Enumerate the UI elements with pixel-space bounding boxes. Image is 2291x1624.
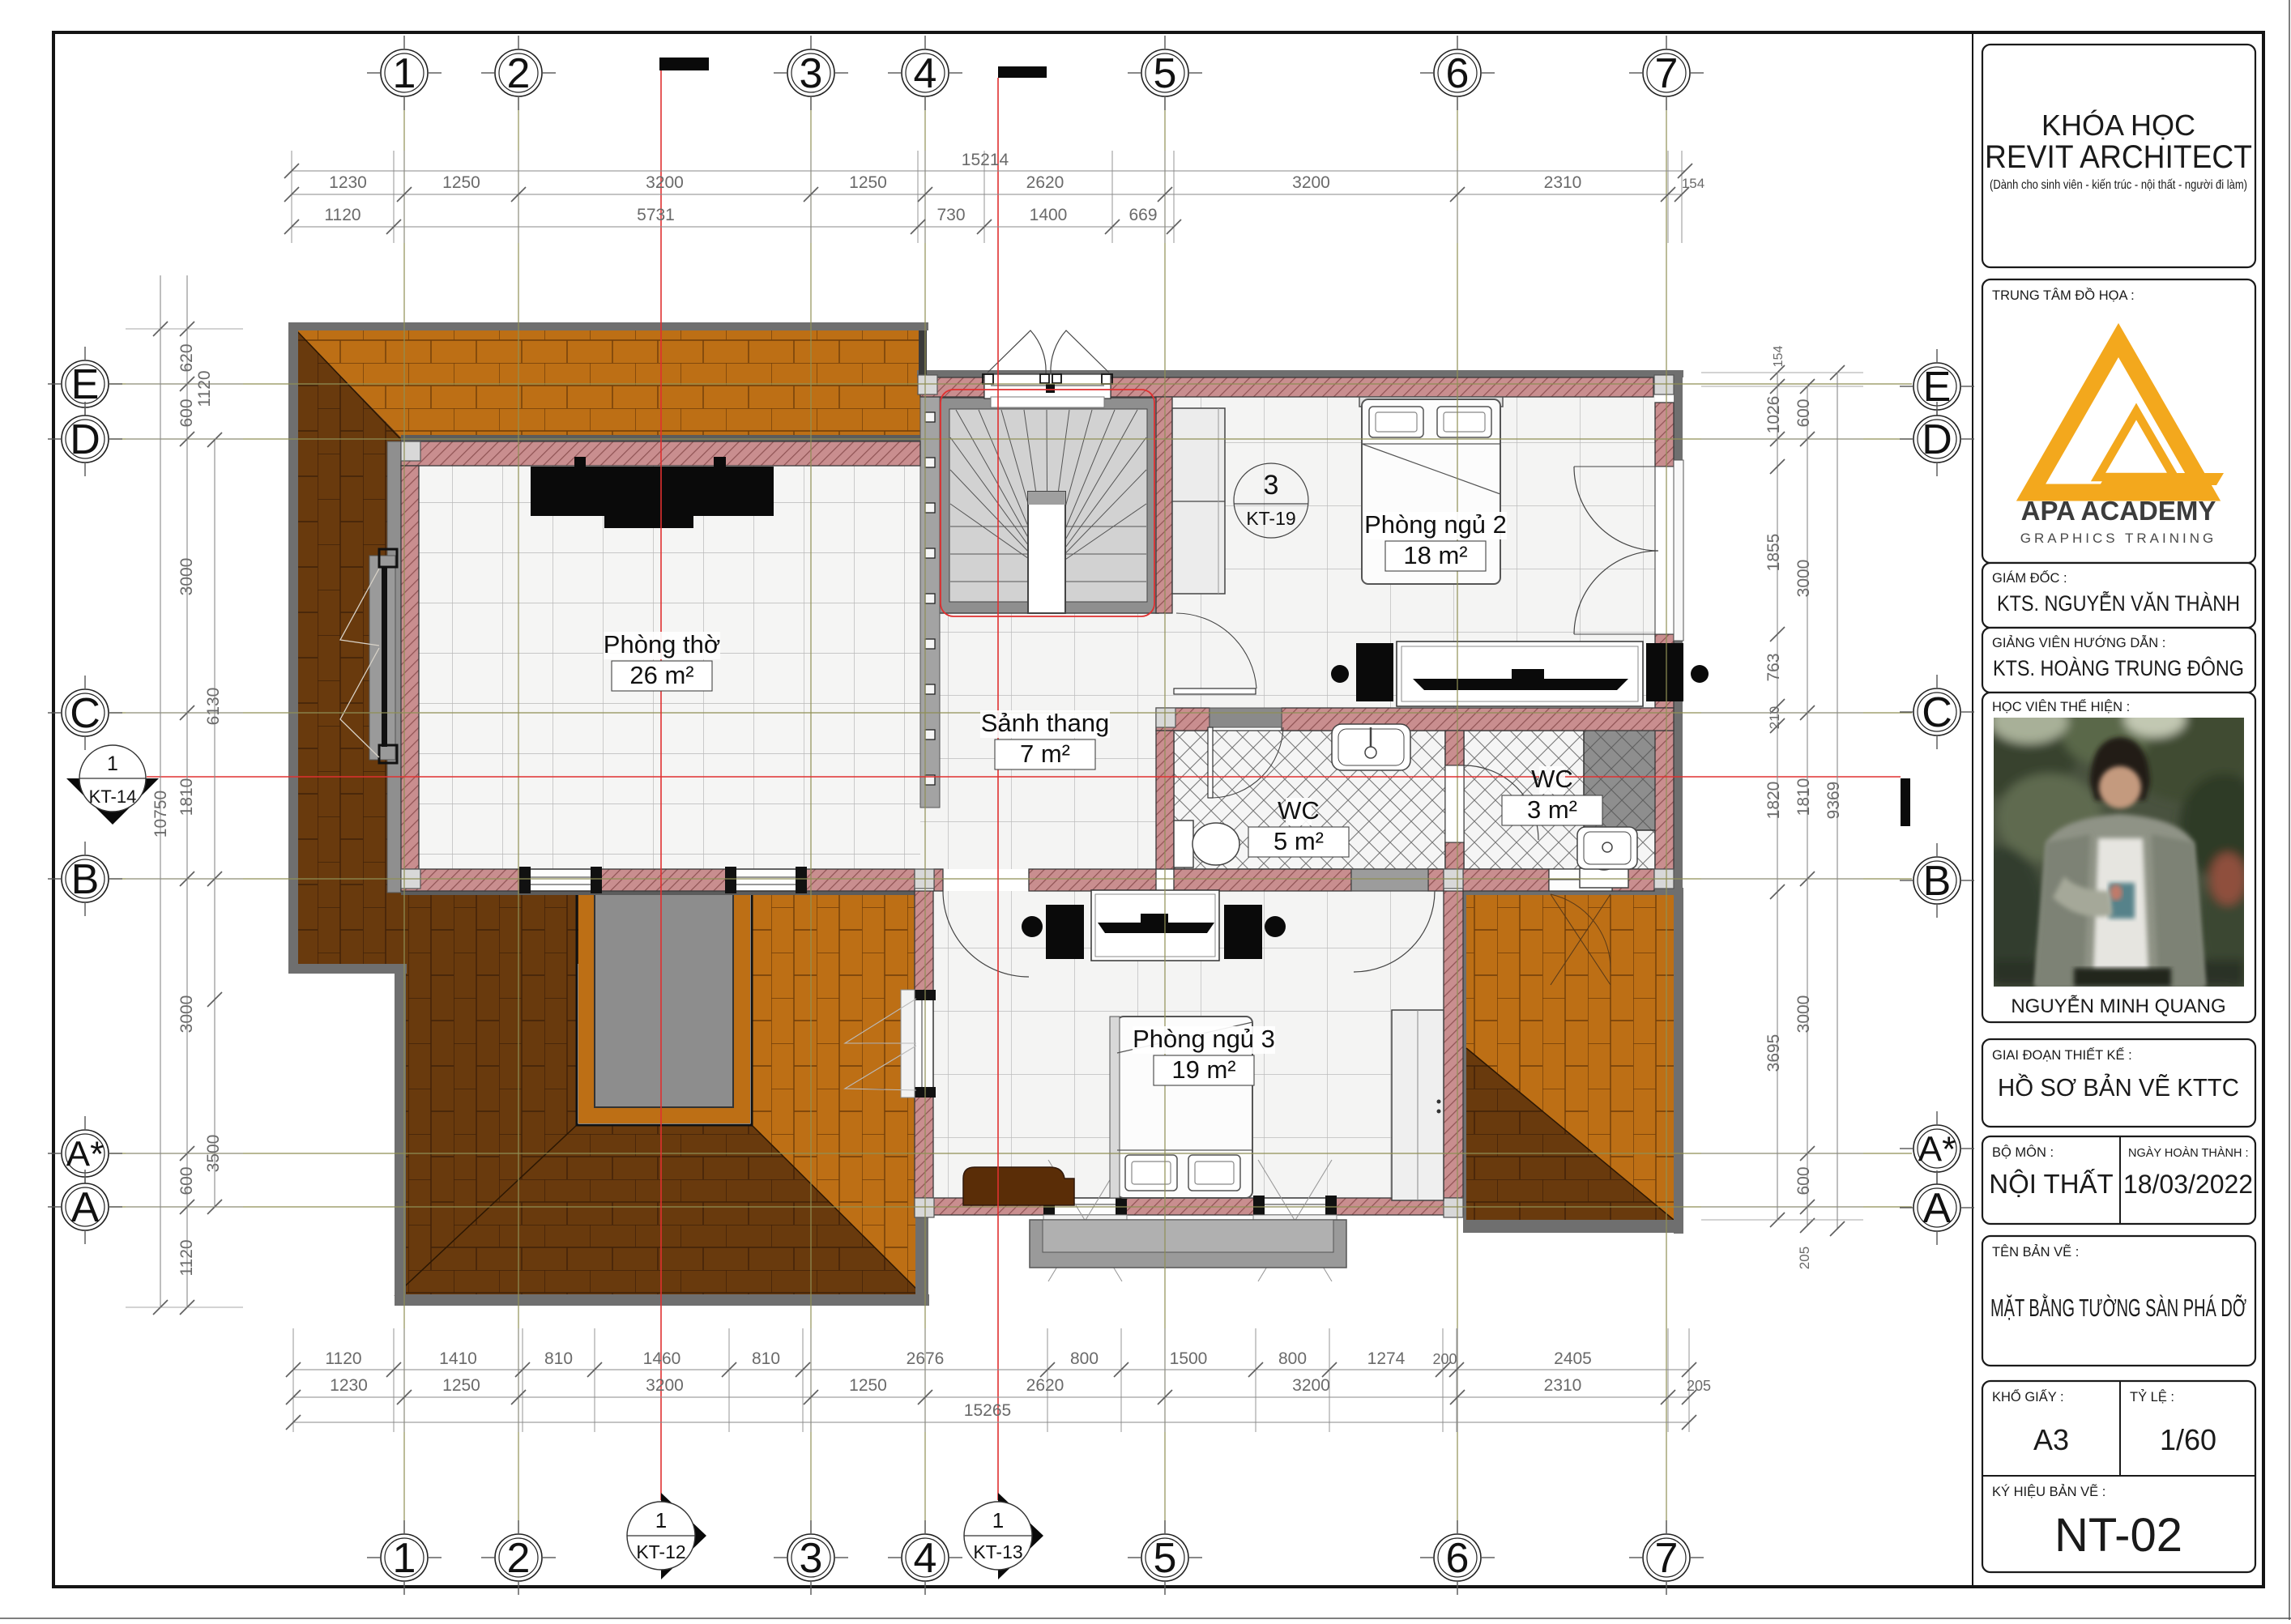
svg-text:GIÁM ĐỐC :: GIÁM ĐỐC : xyxy=(1992,569,2067,586)
svg-text:KHÓA HỌC: KHÓA HỌC xyxy=(2041,109,2195,142)
svg-text:A: A xyxy=(1923,1185,1952,1232)
svg-text:205: 205 xyxy=(1797,1247,1812,1269)
svg-text:1460: 1460 xyxy=(643,1349,681,1368)
svg-text:REVIT ARCHITECT: REVIT ARCHITECT xyxy=(1985,139,2252,175)
svg-text:1120: 1120 xyxy=(325,1349,361,1368)
svg-text:600: 600 xyxy=(1794,399,1813,427)
svg-text:2620: 2620 xyxy=(1026,1376,1064,1395)
svg-text:Phòng ngủ 3: Phòng ngủ 3 xyxy=(1133,1025,1275,1053)
svg-text:5: 5 xyxy=(1154,1535,1177,1582)
svg-text:1026: 1026 xyxy=(1764,396,1783,434)
svg-text:(Dành cho sinh viên - kiến trú: (Dành cho sinh viên - kiến trúc - nội th… xyxy=(1990,178,2247,192)
svg-text:A*: A* xyxy=(66,1134,104,1174)
svg-text:3: 3 xyxy=(800,1535,823,1582)
svg-text:3: 3 xyxy=(800,50,823,97)
svg-text:4: 4 xyxy=(914,1535,937,1582)
svg-text:3200: 3200 xyxy=(646,173,684,192)
svg-text:7: 7 xyxy=(1655,1535,1679,1582)
svg-text:1: 1 xyxy=(393,1535,416,1582)
svg-text:6: 6 xyxy=(1446,50,1470,97)
svg-text:3000: 3000 xyxy=(177,558,196,596)
svg-text:1230: 1230 xyxy=(330,1376,368,1395)
svg-text:B: B xyxy=(1923,858,1952,905)
svg-text:1: 1 xyxy=(992,1508,1004,1532)
svg-text:1410: 1410 xyxy=(439,1349,477,1368)
svg-text:1120: 1120 xyxy=(324,206,361,224)
svg-text:7: 7 xyxy=(1655,50,1679,97)
svg-text:763: 763 xyxy=(1764,653,1783,681)
svg-text:TÊN BẢN VẼ :: TÊN BẢN VẼ : xyxy=(1992,1243,2079,1260)
svg-text:3 m²: 3 m² xyxy=(1527,795,1577,824)
svg-text:2: 2 xyxy=(507,50,531,97)
svg-text:KÝ HIỆU BẢN VẼ :: KÝ HIỆU BẢN VẼ : xyxy=(1992,1483,2105,1499)
svg-text:10750: 10750 xyxy=(151,791,170,838)
svg-text:5 m²: 5 m² xyxy=(1273,827,1324,855)
svg-text:5731: 5731 xyxy=(637,206,675,224)
svg-text:2310: 2310 xyxy=(1544,1376,1582,1395)
svg-text:C: C xyxy=(1922,689,1952,736)
svg-text:730: 730 xyxy=(936,206,965,224)
svg-text:A*: A* xyxy=(1918,1129,1956,1169)
svg-text:3695: 3695 xyxy=(1764,1034,1783,1072)
svg-text:1230: 1230 xyxy=(329,173,367,192)
svg-text:MẶT BẰNG TƯỜNG SÀN PHÁ DỠ: MẶT BẰNG TƯỜNG SÀN PHÁ DỠ xyxy=(1990,1294,2246,1322)
svg-text:154: 154 xyxy=(1772,346,1785,368)
svg-text:1250: 1250 xyxy=(442,173,480,192)
svg-text:NT-02: NT-02 xyxy=(2054,1509,2182,1562)
svg-text:GIẢNG VIÊN HƯỚNG DẪN :: GIẢNG VIÊN HƯỚNG DẪN : xyxy=(1992,635,2165,650)
svg-text:600: 600 xyxy=(177,399,196,427)
svg-text:1400: 1400 xyxy=(1030,206,1068,224)
svg-text:205: 205 xyxy=(1687,1378,1711,1394)
svg-text:NỘI THẤT: NỘI THẤT xyxy=(1989,1169,2113,1199)
svg-text:154: 154 xyxy=(1682,176,1704,191)
svg-text:3500: 3500 xyxy=(204,1135,223,1173)
svg-text:1855: 1855 xyxy=(1764,534,1783,572)
svg-text:KTS. HOÀNG TRUNG ĐÔNG: KTS. HOÀNG TRUNG ĐÔNG xyxy=(1993,655,2244,680)
svg-text:2620: 2620 xyxy=(1026,173,1064,192)
svg-text:1250: 1250 xyxy=(849,173,887,192)
svg-text:19 m²: 19 m² xyxy=(1171,1055,1235,1084)
svg-text:APA ACADEMY: APA ACADEMY xyxy=(2021,496,2216,526)
svg-text:620: 620 xyxy=(177,343,196,372)
svg-text:KT-14: KT-14 xyxy=(89,786,137,807)
svg-text:3200: 3200 xyxy=(1292,173,1330,192)
svg-text:1: 1 xyxy=(655,1508,667,1532)
svg-text:3000: 3000 xyxy=(1794,560,1813,598)
svg-text:3200: 3200 xyxy=(646,1376,684,1395)
svg-text:A3: A3 xyxy=(2033,1423,2069,1456)
svg-text:D: D xyxy=(1922,416,1952,463)
svg-text:1120: 1120 xyxy=(195,370,214,407)
svg-text:C: C xyxy=(70,690,100,737)
svg-text:Sảnh thang: Sảnh thang xyxy=(981,709,1110,737)
svg-text:KT-12: KT-12 xyxy=(636,1541,685,1562)
svg-text:9369: 9369 xyxy=(1824,782,1843,820)
svg-text:1120: 1120 xyxy=(177,1239,196,1276)
svg-text:15265: 15265 xyxy=(964,1401,1011,1420)
svg-text:1/60: 1/60 xyxy=(2160,1423,2216,1456)
svg-text:600: 600 xyxy=(177,1166,196,1195)
svg-text:TỶ LỆ :: TỶ LỆ : xyxy=(2130,1389,2174,1404)
svg-text:1820: 1820 xyxy=(1764,782,1783,820)
svg-text:E: E xyxy=(71,361,100,408)
svg-text:Phòng ngủ 2: Phòng ngủ 2 xyxy=(1364,510,1507,539)
svg-text:1810: 1810 xyxy=(1794,778,1813,816)
svg-text:TRUNG TÂM ĐỒ HỌA :: TRUNG TÂM ĐỒ HỌA : xyxy=(1992,288,2135,303)
svg-text:15214: 15214 xyxy=(962,151,1009,169)
svg-text:3200: 3200 xyxy=(1292,1376,1330,1395)
svg-text:KTS. NGUYỄN VĂN THÀNH: KTS. NGUYỄN VĂN THÀNH xyxy=(1997,590,2240,616)
svg-text:GRAPHICS TRAINING: GRAPHICS TRAINING xyxy=(2020,531,2216,546)
svg-text:2405: 2405 xyxy=(1554,1349,1592,1368)
svg-text:3000: 3000 xyxy=(177,995,196,1034)
svg-text:KHỔ GIẤY :: KHỔ GIẤY : xyxy=(1992,1389,2064,1404)
svg-text:26 m²: 26 m² xyxy=(629,661,693,689)
svg-text:1250: 1250 xyxy=(849,1376,887,1395)
svg-text:1: 1 xyxy=(393,50,416,97)
svg-text:WC: WC xyxy=(1531,765,1573,793)
svg-text:6130: 6130 xyxy=(204,688,223,726)
svg-text:1274: 1274 xyxy=(1367,1349,1406,1368)
svg-text:5: 5 xyxy=(1154,50,1177,97)
svg-text:669: 669 xyxy=(1128,206,1157,224)
svg-text:810: 810 xyxy=(544,1349,573,1368)
svg-text:Phòng thờ: Phòng thờ xyxy=(604,630,720,659)
svg-text:6: 6 xyxy=(1446,1535,1470,1582)
svg-text:3000: 3000 xyxy=(1794,995,1813,1034)
svg-text:A: A xyxy=(71,1184,100,1231)
svg-text:HỒ SƠ BẢN VẼ KTTC: HỒ SƠ BẢN VẼ KTTC xyxy=(1998,1072,2239,1102)
svg-text:1250: 1250 xyxy=(442,1376,480,1395)
svg-text:2676: 2676 xyxy=(907,1349,945,1368)
svg-text:200: 200 xyxy=(1432,1351,1457,1367)
svg-text:800: 800 xyxy=(1070,1349,1099,1368)
svg-text:GIAI ĐOẠN THIẾT KẾ :: GIAI ĐOẠN THIẾT KẾ : xyxy=(1992,1047,2132,1063)
svg-text:3: 3 xyxy=(1264,470,1279,501)
svg-text:18/03/2022: 18/03/2022 xyxy=(2123,1170,2253,1199)
svg-text:1810: 1810 xyxy=(177,778,196,816)
svg-text:HỌC VIÊN THỂ HIỆN :: HỌC VIÊN THỂ HIỆN : xyxy=(1992,699,2130,714)
svg-text:2310: 2310 xyxy=(1544,173,1582,192)
svg-text:WC: WC xyxy=(1278,796,1320,825)
svg-text:2: 2 xyxy=(507,1535,531,1582)
svg-text:1: 1 xyxy=(107,752,118,775)
svg-text:D: D xyxy=(70,416,100,463)
svg-text:810: 810 xyxy=(752,1349,780,1368)
svg-text:B: B xyxy=(71,856,100,903)
svg-text:NGUYỄN MINH QUANG: NGUYỄN MINH QUANG xyxy=(2011,994,2225,1017)
svg-text:7 m²: 7 m² xyxy=(1020,740,1070,768)
svg-text:4: 4 xyxy=(914,50,937,97)
svg-text:1500: 1500 xyxy=(1170,1349,1208,1368)
svg-text:KT-13: KT-13 xyxy=(973,1541,1022,1562)
svg-text:NGÀY HOÀN THÀNH :: NGÀY HOÀN THÀNH : xyxy=(2128,1146,2249,1160)
svg-text:600: 600 xyxy=(1794,1166,1813,1195)
svg-text:KT-19: KT-19 xyxy=(1246,508,1295,529)
svg-text:210: 210 xyxy=(1767,706,1782,729)
svg-text:18 m²: 18 m² xyxy=(1403,541,1467,569)
svg-text:BỘ MÔN :: BỘ MÔN : xyxy=(1992,1144,2054,1160)
svg-text:800: 800 xyxy=(1278,1349,1307,1368)
